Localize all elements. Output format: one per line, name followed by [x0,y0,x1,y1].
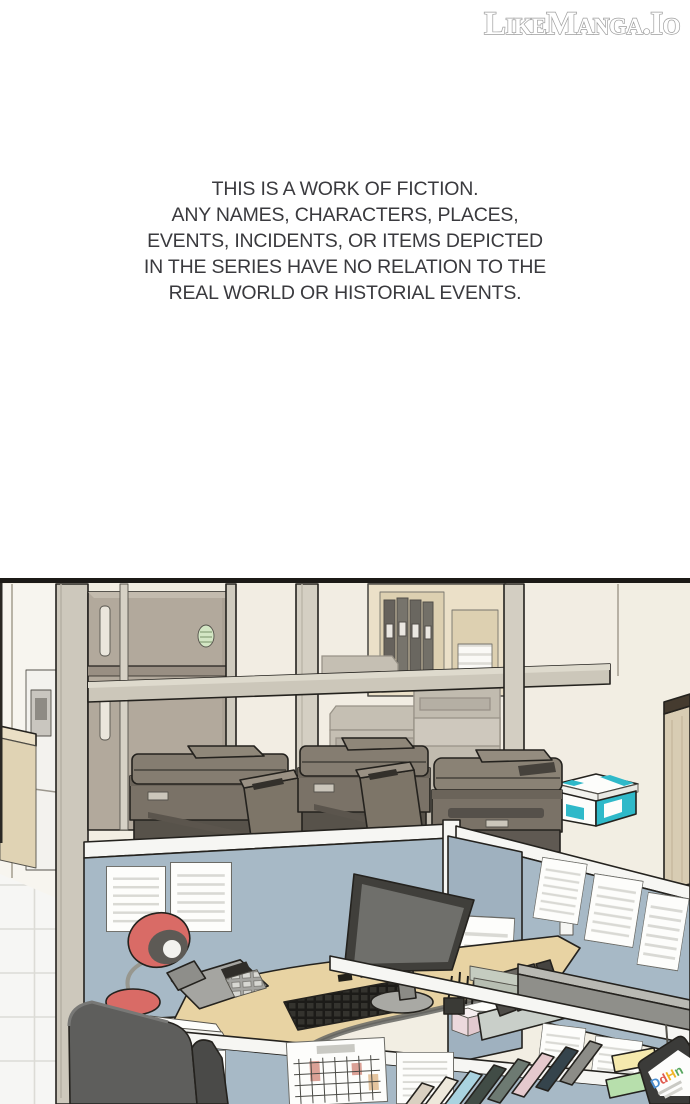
manga-reader-page: LikeManga.Io THIS IS A WORK OF FICTION. … [0,0,690,1104]
printer-1 [130,746,306,844]
fiction-disclaimer-text: THIS IS A WORK OF FICTION. ANY NAMES, CH… [0,176,690,306]
calendar [286,1037,387,1104]
wall-cabinet [664,694,690,890]
panel-border-left [0,583,3,843]
printer-document-feeder [342,738,414,750]
panel-border-top [0,578,690,583]
pinned-paper [533,857,587,924]
tiled-floor [0,874,56,1104]
printer-document-feeder [476,750,552,762]
break-room [0,584,56,1104]
lamp-bulb [163,940,181,958]
printer-2 [298,738,430,836]
comic-panel-image[interactable]: DdHn [0,578,690,1104]
fridge-magnet [198,625,214,647]
site-logo[interactable]: LikeManga.Io [444,0,684,50]
printer-document-feeder [188,746,264,758]
site-logo-text: LikeManga.Io [484,6,680,42]
pinned-paper [584,874,643,948]
fridge-handle [100,606,110,656]
